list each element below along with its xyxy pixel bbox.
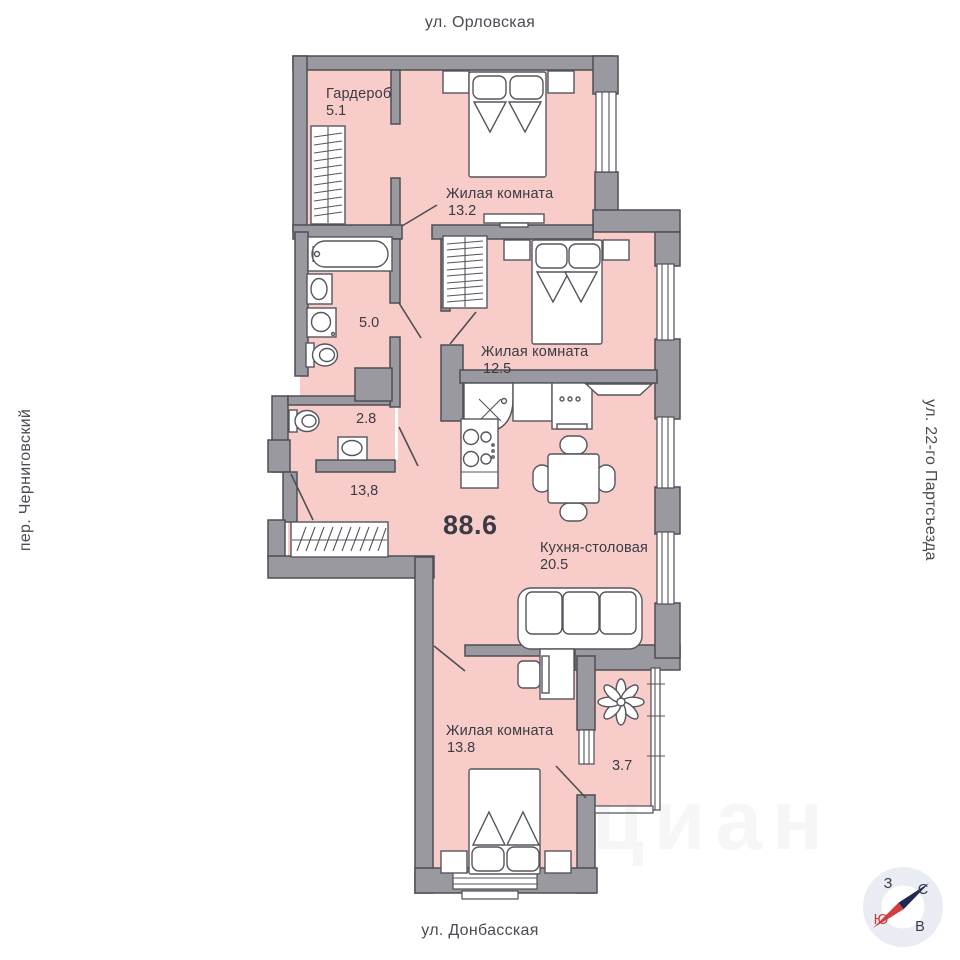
watermark: циан xyxy=(592,772,833,869)
hood-icon xyxy=(586,384,652,395)
street-left: пер. Черниговский xyxy=(17,409,35,551)
kitchen-counter-icon xyxy=(513,383,552,421)
washing-machine-icon xyxy=(307,308,336,337)
label-bedroom-top-area: 13.2 xyxy=(448,203,476,219)
compass-south-label: Ю xyxy=(874,912,889,928)
bath-toilet-icon xyxy=(306,343,338,367)
street-bottom: ул. Донбасская xyxy=(421,922,538,940)
cooktop-icon xyxy=(552,383,592,429)
street-top: ул. Орловская xyxy=(425,14,535,32)
label-hallway-area: 13,8 xyxy=(350,483,378,499)
label-bedroom-bottom-area: 13.8 xyxy=(447,740,475,756)
label-kitchen-area: 20.5 xyxy=(540,557,568,573)
label-wardrobe-area: 5.1 xyxy=(326,103,346,119)
wardrobe-rack-icon xyxy=(311,126,345,224)
compass-east-label: В xyxy=(915,919,925,935)
coat-rack-icon xyxy=(291,522,388,557)
compass-north-label: С xyxy=(918,882,928,898)
street-right: ул. 22-го Партсъезда xyxy=(921,399,939,561)
label-bedroom-mid-area: 12.5 xyxy=(483,361,511,377)
label-bedroom-top-name: Жилая комната xyxy=(446,186,553,203)
label-bedroom-mid-name: Жилая комната xyxy=(481,344,588,361)
label-kitchen-name: Кухня-столовая xyxy=(540,540,648,557)
floorplan-page: ул. Орловская ул. Донбасская пер. Черниг… xyxy=(0,0,960,960)
wc-toilet-icon xyxy=(289,410,319,432)
label-bedroom-bottom-name: Жилая комната xyxy=(446,723,553,740)
wardrobe-rack2-icon xyxy=(443,236,487,308)
label-wardrobe-name: Гардероб xyxy=(326,86,391,103)
compass-west-label: З xyxy=(884,876,893,892)
compass: З С Ю В xyxy=(860,864,946,950)
wc-sink-icon xyxy=(338,437,367,460)
sofa-icon xyxy=(518,588,642,649)
label-wc-area: 2.8 xyxy=(356,411,376,427)
bathtub-icon xyxy=(308,237,392,271)
stove-icon xyxy=(461,419,498,488)
bath-sink-icon xyxy=(307,274,332,304)
total-area: 88.6 xyxy=(443,510,498,541)
label-bathroom-area: 5.0 xyxy=(359,315,379,331)
plant-icon xyxy=(598,679,644,725)
